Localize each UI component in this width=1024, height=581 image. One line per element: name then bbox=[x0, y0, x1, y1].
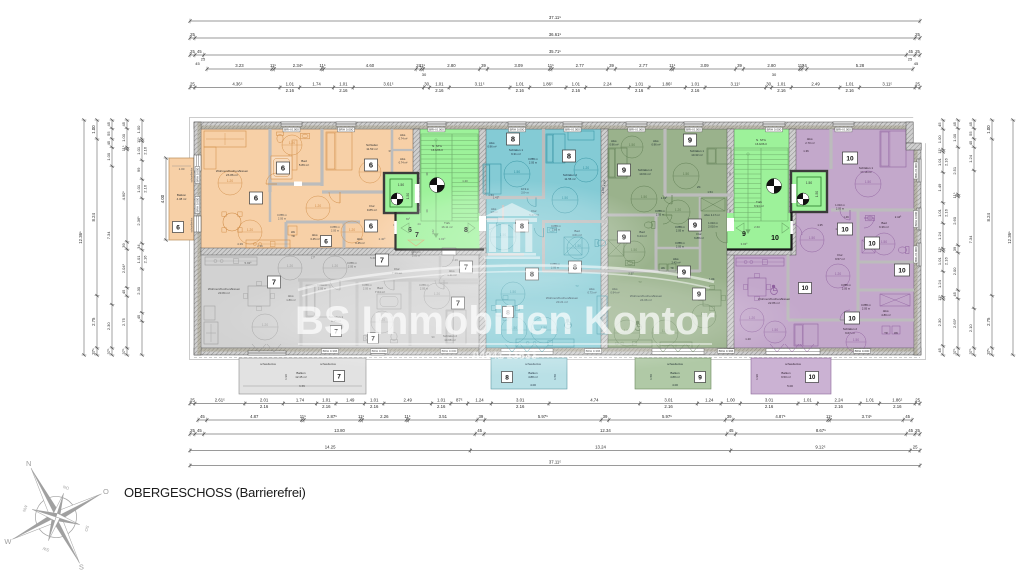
svg-text:6: 6 bbox=[281, 164, 285, 173]
svg-text:2.60: 2.60 bbox=[754, 225, 760, 229]
svg-text:5.89 m²: 5.89 m² bbox=[299, 163, 309, 167]
svg-text:2.87⁵: 2.87⁵ bbox=[327, 414, 337, 419]
svg-text:10: 10 bbox=[848, 315, 856, 322]
svg-text:1.50: 1.50 bbox=[865, 180, 871, 184]
svg-text:9.67 m²: 9.67 m² bbox=[845, 331, 855, 335]
svg-text:2.49: 2.49 bbox=[811, 81, 820, 86]
svg-text:3.01: 3.01 bbox=[664, 397, 673, 402]
svg-text:BRH 0.000: BRH 0.000 bbox=[855, 349, 870, 353]
svg-text:39: 39 bbox=[728, 172, 732, 176]
svg-text:11⁵: 11⁵ bbox=[136, 137, 141, 143]
svg-text:2.16: 2.16 bbox=[664, 404, 673, 409]
svg-text:6.88 m²: 6.88 m² bbox=[694, 236, 704, 240]
svg-text:O: O bbox=[103, 487, 109, 496]
svg-text:W: W bbox=[4, 537, 12, 546]
svg-text:11⁵: 11⁵ bbox=[669, 63, 675, 68]
svg-text:1.50: 1.50 bbox=[398, 183, 404, 187]
svg-text:2.16: 2.16 bbox=[286, 88, 295, 93]
svg-text:1.50: 1.50 bbox=[641, 195, 647, 199]
svg-text:4.38 m²: 4.38 m² bbox=[177, 197, 187, 201]
svg-text:2.16: 2.16 bbox=[691, 88, 700, 93]
svg-text:11.53 m²: 11.53 m² bbox=[366, 147, 378, 151]
svg-text:5.97⁵: 5.97⁵ bbox=[662, 414, 672, 419]
svg-text:6.36 m²: 6.36 m² bbox=[879, 225, 889, 229]
svg-text:12.36⁵: 12.36⁵ bbox=[78, 231, 83, 244]
svg-text:1.01: 1.01 bbox=[136, 146, 141, 155]
svg-text:2.05 m: 2.05 m bbox=[862, 306, 871, 310]
svg-text:5.97⁵: 5.97⁵ bbox=[538, 414, 548, 419]
svg-text:1.010 m: 1.010 m bbox=[835, 203, 845, 207]
svg-text:2.16: 2.16 bbox=[944, 257, 949, 266]
svg-text:9: 9 bbox=[698, 374, 702, 381]
svg-text:1.20: 1.20 bbox=[289, 141, 295, 145]
svg-text:BRH 0.000: BRH 0.000 bbox=[914, 163, 918, 178]
svg-text:BRH 0.000: BRH 0.000 bbox=[339, 128, 354, 132]
svg-text:39: 39 bbox=[425, 172, 429, 176]
svg-text:0.885 m: 0.885 m bbox=[330, 225, 340, 229]
svg-text:2.16: 2.16 bbox=[143, 255, 148, 264]
svg-text:16.9/26.0: 16.9/26.0 bbox=[755, 142, 767, 146]
svg-text:36.61⁵: 36.61⁵ bbox=[549, 32, 562, 37]
svg-text:1.01: 1.01 bbox=[339, 81, 348, 86]
svg-text:2.26: 2.26 bbox=[380, 414, 389, 419]
svg-text:45: 45 bbox=[968, 140, 973, 145]
svg-text:1.01: 1.01 bbox=[286, 81, 295, 86]
svg-text:1.20: 1.20 bbox=[227, 179, 233, 183]
svg-text:45: 45 bbox=[136, 314, 141, 319]
svg-text:1.00: 1.00 bbox=[121, 133, 126, 142]
svg-text:8.24: 8.24 bbox=[91, 213, 96, 222]
svg-text:2.05 m: 2.05 m bbox=[676, 228, 685, 232]
svg-text:BS Immobilien Kontor: BS Immobilien Kontor bbox=[295, 299, 715, 343]
svg-text:4.90⁵: 4.90⁵ bbox=[121, 191, 126, 201]
svg-text:1.00: 1.00 bbox=[136, 125, 141, 134]
svg-text:04941 13533: 04941 13533 bbox=[473, 350, 537, 362]
svg-text:1.00: 1.00 bbox=[179, 167, 185, 171]
svg-text:1.01: 1.01 bbox=[572, 81, 581, 86]
svg-text:2.36⁵: 2.36⁵ bbox=[136, 216, 141, 226]
svg-text:3.51: 3.51 bbox=[439, 414, 448, 419]
svg-text:1.01: 1.01 bbox=[803, 397, 812, 402]
svg-text:1.50: 1.50 bbox=[853, 338, 859, 342]
svg-text:2.16: 2.16 bbox=[635, 88, 644, 93]
svg-text:2.75: 2.75 bbox=[121, 317, 126, 326]
svg-text:1.01: 1.01 bbox=[370, 397, 379, 402]
svg-text:4.87: 4.87 bbox=[250, 414, 259, 419]
svg-text:11⁵: 11⁵ bbox=[937, 246, 942, 252]
svg-text:1.36: 1.36 bbox=[803, 149, 809, 153]
svg-text:1.49: 1.49 bbox=[346, 397, 355, 402]
svg-text:BRH 0.000: BRH 0.000 bbox=[565, 128, 580, 132]
svg-text:45: 45 bbox=[908, 428, 913, 433]
svg-text:schwellenlos: schwellenlos bbox=[785, 362, 801, 366]
svg-text:10: 10 bbox=[802, 286, 809, 292]
svg-text:Abst.: Abst. bbox=[489, 141, 495, 145]
svg-text:1.20: 1.20 bbox=[675, 208, 681, 212]
svg-text:2.16: 2.16 bbox=[765, 404, 774, 409]
svg-text:4.39: 4.39 bbox=[237, 242, 243, 246]
svg-text:1.86⁵: 1.86⁵ bbox=[662, 81, 672, 86]
svg-text:2.70 m²: 2.70 m² bbox=[805, 141, 815, 145]
svg-text:2.16: 2.16 bbox=[143, 146, 148, 155]
svg-text:45: 45 bbox=[729, 428, 734, 433]
svg-text:2.16: 2.16 bbox=[322, 404, 331, 409]
svg-text:11⁵: 11⁵ bbox=[358, 414, 364, 419]
svg-text:45: 45 bbox=[197, 428, 202, 433]
svg-text:11⁵: 11⁵ bbox=[270, 63, 276, 68]
svg-text:10: 10 bbox=[771, 235, 779, 242]
svg-text:2.61⁵: 2.61⁵ bbox=[215, 397, 225, 402]
svg-text:1.01: 1.01 bbox=[691, 81, 700, 86]
svg-text:2.16: 2.16 bbox=[944, 157, 949, 166]
svg-text:BRH 0.000: BRH 0.000 bbox=[836, 128, 851, 132]
svg-text:37⁵: 37⁵ bbox=[91, 348, 96, 355]
svg-text:25: 25 bbox=[201, 57, 206, 62]
svg-text:1.01: 1.01 bbox=[635, 81, 644, 86]
svg-text:1.00: 1.00 bbox=[986, 125, 991, 134]
svg-text:1.24: 1.24 bbox=[705, 397, 714, 402]
svg-text:8.67⁵: 8.67⁵ bbox=[816, 428, 826, 433]
svg-text:2.77: 2.77 bbox=[639, 63, 648, 68]
svg-text:1.01: 1.01 bbox=[437, 397, 446, 402]
svg-text:2.16: 2.16 bbox=[835, 404, 844, 409]
svg-text:39: 39 bbox=[481, 63, 486, 68]
svg-text:55: 55 bbox=[106, 131, 111, 136]
svg-text:2.80: 2.80 bbox=[767, 63, 776, 68]
svg-text:87⁵: 87⁵ bbox=[456, 397, 463, 402]
svg-text:2.63⁵: 2.63⁵ bbox=[952, 318, 957, 328]
svg-text:45: 45 bbox=[968, 121, 973, 126]
svg-text:11⁵: 11⁵ bbox=[404, 414, 410, 419]
svg-text:3.61⁵: 3.61⁵ bbox=[383, 81, 393, 86]
svg-text:25: 25 bbox=[915, 49, 920, 54]
svg-text:4.89 m²: 4.89 m² bbox=[881, 313, 891, 317]
svg-text:11⁵: 11⁵ bbox=[300, 414, 306, 419]
svg-text:2.16: 2.16 bbox=[143, 184, 148, 193]
svg-text:6: 6 bbox=[324, 238, 328, 245]
svg-text:0.885 m: 0.885 m bbox=[528, 157, 538, 161]
svg-text:39: 39 bbox=[952, 246, 957, 251]
svg-text:2.60: 2.60 bbox=[952, 216, 957, 225]
svg-text:37⁵: 37⁵ bbox=[106, 348, 111, 354]
svg-text:8: 8 bbox=[567, 152, 571, 161]
svg-text:BRH 0.000: BRH 0.000 bbox=[914, 247, 918, 262]
svg-text:25: 25 bbox=[915, 397, 920, 402]
svg-text:1.01: 1.01 bbox=[435, 81, 444, 86]
svg-text:0.74 m²: 0.74 m² bbox=[399, 160, 408, 164]
svg-text:9: 9 bbox=[688, 136, 692, 145]
svg-text:Abst. 4.17 m²: Abst. 4.17 m² bbox=[704, 213, 720, 217]
svg-text:45: 45 bbox=[121, 289, 126, 294]
svg-text:1.24: 1.24 bbox=[475, 397, 484, 402]
svg-text:12.34: 12.34 bbox=[600, 428, 611, 433]
svg-text:BRH 0.000: BRH 0.000 bbox=[629, 128, 644, 132]
svg-text:1.01: 1.01 bbox=[937, 257, 942, 266]
svg-text:4.00: 4.00 bbox=[530, 383, 536, 387]
svg-text:1.86⁵: 1.86⁵ bbox=[543, 81, 553, 86]
svg-text:TR: TR bbox=[670, 267, 673, 270]
svg-text:10.64 m²: 10.64 m² bbox=[639, 172, 650, 176]
svg-text:2.16: 2.16 bbox=[435, 88, 444, 93]
svg-text:1.20: 1.20 bbox=[349, 228, 355, 232]
svg-text:2.77: 2.77 bbox=[576, 63, 585, 68]
svg-text:1.01: 1.01 bbox=[937, 157, 942, 166]
svg-text:1.20: 1.20 bbox=[583, 166, 589, 170]
svg-text:45: 45 bbox=[937, 122, 942, 127]
svg-text:9.50 m²: 9.50 m² bbox=[781, 375, 791, 379]
svg-text:0.885 m: 0.885 m bbox=[861, 303, 871, 307]
svg-text:0.74 m²: 0.74 m² bbox=[399, 136, 408, 140]
svg-text:1.50: 1.50 bbox=[806, 181, 812, 185]
svg-text:6.94 m²: 6.94 m² bbox=[754, 204, 764, 208]
svg-text:11⁵: 11⁵ bbox=[937, 147, 942, 153]
svg-text:2.05 m: 2.05 m bbox=[529, 160, 538, 164]
svg-text:45: 45 bbox=[106, 121, 111, 126]
svg-text:30: 30 bbox=[422, 72, 427, 77]
svg-text:39: 39 bbox=[121, 243, 126, 248]
svg-text:schwellenlos: schwellenlos bbox=[190, 217, 194, 232]
svg-text:1.01: 1.01 bbox=[136, 255, 141, 264]
svg-text:45: 45 bbox=[908, 49, 913, 54]
svg-text:12.36⁵: 12.36⁵ bbox=[1007, 231, 1012, 244]
svg-text:Abst.: Abst. bbox=[400, 133, 406, 137]
svg-text:1.49: 1.49 bbox=[937, 183, 942, 192]
svg-text:1.00: 1.00 bbox=[91, 125, 96, 134]
svg-text:5.28: 5.28 bbox=[856, 63, 865, 68]
svg-text:13.80: 13.80 bbox=[334, 428, 345, 433]
svg-text:45: 45 bbox=[106, 140, 111, 145]
svg-text:45: 45 bbox=[937, 347, 942, 352]
svg-text:7: 7 bbox=[337, 373, 341, 380]
svg-text:1.01: 1.01 bbox=[866, 397, 875, 402]
svg-text:30: 30 bbox=[772, 72, 777, 77]
svg-text:14.18 m²: 14.18 m² bbox=[860, 170, 871, 174]
svg-text:2.51: 2.51 bbox=[952, 166, 957, 175]
svg-text:39: 39 bbox=[737, 63, 742, 68]
svg-text:25: 25 bbox=[908, 57, 913, 62]
svg-text:WA: WA bbox=[894, 331, 898, 335]
svg-text:1.90: 1.90 bbox=[284, 374, 288, 380]
svg-text:2.00: 2.00 bbox=[952, 267, 957, 276]
svg-text:BRH 0.000: BRH 0.000 bbox=[767, 128, 782, 132]
svg-text:8.24: 8.24 bbox=[986, 213, 991, 222]
svg-text:4.60: 4.60 bbox=[366, 63, 375, 68]
svg-text:2.24: 2.24 bbox=[603, 81, 612, 86]
svg-text:1.00: 1.00 bbox=[937, 135, 942, 144]
svg-text:Abst.: Abst. bbox=[673, 257, 679, 261]
svg-text:0.885 m: 0.885 m bbox=[277, 213, 287, 217]
svg-text:0.885 m: 0.885 m bbox=[841, 283, 851, 287]
svg-text:6: 6 bbox=[254, 194, 258, 203]
svg-text:0.885 m: 0.885 m bbox=[655, 209, 665, 213]
svg-text:11⁵: 11⁵ bbox=[419, 63, 425, 68]
svg-text:45: 45 bbox=[200, 414, 205, 419]
svg-text:10.33 m²: 10.33 m² bbox=[691, 153, 702, 157]
svg-text:25: 25 bbox=[190, 49, 195, 54]
svg-text:45: 45 bbox=[952, 291, 957, 296]
svg-text:4.00: 4.00 bbox=[160, 194, 165, 203]
svg-text:1.50: 1.50 bbox=[649, 374, 653, 380]
svg-text:4.00: 4.00 bbox=[672, 383, 678, 387]
svg-text:11⁵: 11⁵ bbox=[826, 414, 832, 419]
svg-text:10: 10 bbox=[868, 240, 876, 247]
svg-text:schwellenlos: schwellenlos bbox=[190, 167, 194, 182]
svg-text:BRH 0.000: BRH 0.000 bbox=[510, 128, 525, 132]
svg-text:9.57 m²: 9.57 m² bbox=[835, 257, 845, 261]
svg-text:3.09: 3.09 bbox=[700, 63, 709, 68]
svg-text:1.20: 1.20 bbox=[462, 179, 468, 183]
svg-text:1.50: 1.50 bbox=[815, 191, 819, 197]
svg-text:TR: TR bbox=[884, 331, 888, 335]
svg-text:1.24: 1.24 bbox=[937, 279, 942, 288]
svg-text:4.74: 4.74 bbox=[590, 397, 599, 402]
svg-text:2.01: 2.01 bbox=[260, 397, 269, 402]
svg-text:39: 39 bbox=[478, 414, 483, 419]
svg-text:39: 39 bbox=[728, 209, 732, 213]
svg-text:2.05 m: 2.05 m bbox=[278, 216, 287, 220]
svg-text:OBERGESCHOSS (Barrierefrei): OBERGESCHOSS (Barrierefrei) bbox=[124, 485, 306, 500]
svg-text:35.71⁵: 35.71⁵ bbox=[549, 49, 561, 54]
svg-text:1.50: 1.50 bbox=[809, 236, 815, 240]
svg-text:45: 45 bbox=[197, 49, 202, 54]
svg-text:2.05 m: 2.05 m bbox=[836, 206, 845, 210]
svg-text:10: 10 bbox=[809, 375, 816, 381]
svg-text:1.20: 1.20 bbox=[315, 204, 321, 208]
svg-text:2.49: 2.49 bbox=[404, 397, 413, 402]
svg-text:2.75: 2.75 bbox=[91, 317, 96, 326]
svg-text:45: 45 bbox=[121, 121, 126, 126]
svg-text:9: 9 bbox=[622, 166, 626, 175]
svg-text:BRH 0.000: BRH 0.000 bbox=[429, 128, 444, 132]
svg-text:12.45 m²: 12.45 m² bbox=[295, 375, 306, 379]
svg-text:0.96 m²: 0.96 m² bbox=[609, 142, 618, 146]
svg-text:3.01: 3.01 bbox=[765, 397, 774, 402]
svg-text:2.30: 2.30 bbox=[937, 318, 942, 327]
svg-text:39: 39 bbox=[727, 414, 732, 419]
svg-text:0.885 m: 0.885 m bbox=[675, 241, 685, 245]
svg-text:1.00: 1.00 bbox=[952, 133, 957, 142]
svg-text:2.30: 2.30 bbox=[136, 286, 141, 295]
svg-text:45: 45 bbox=[914, 61, 919, 66]
svg-text:2.44⁵: 2.44⁵ bbox=[895, 215, 902, 219]
svg-text:1.01: 1.01 bbox=[322, 397, 331, 402]
svg-text:45: 45 bbox=[952, 121, 957, 126]
svg-text:BRH 0.000: BRH 0.000 bbox=[196, 197, 200, 212]
svg-text:Abst.: Abst. bbox=[653, 139, 659, 143]
svg-text:4.60²: 4.60² bbox=[603, 180, 607, 186]
svg-text:BRH 0.000: BRH 0.000 bbox=[196, 167, 200, 182]
svg-text:1.54: 1.54 bbox=[707, 190, 713, 194]
svg-text:3.11⁵: 3.11⁵ bbox=[882, 81, 892, 86]
svg-text:24: 24 bbox=[802, 63, 807, 68]
svg-text:11.56 m²: 11.56 m² bbox=[564, 177, 575, 181]
svg-text:9.31 m²: 9.31 m² bbox=[511, 152, 521, 156]
svg-text:23⁵: 23⁵ bbox=[697, 185, 701, 189]
svg-text:BRH 0.000: BRH 0.000 bbox=[914, 211, 918, 226]
svg-text:55: 55 bbox=[968, 131, 973, 136]
svg-text:2.80: 2.80 bbox=[447, 63, 456, 68]
svg-text:1.90: 1.90 bbox=[755, 374, 759, 380]
svg-text:2.16: 2.16 bbox=[516, 88, 525, 93]
svg-text:BRH 0.000: BRH 0.000 bbox=[284, 128, 299, 132]
svg-text:1.24: 1.24 bbox=[937, 231, 942, 240]
svg-text:2.04⁵: 2.04⁵ bbox=[121, 263, 126, 273]
svg-text:Abst.: Abst. bbox=[611, 139, 617, 143]
svg-text:2.010 m: 2.010 m bbox=[708, 224, 718, 228]
svg-text:9.85 m²: 9.85 m² bbox=[367, 208, 377, 212]
svg-text:2.16: 2.16 bbox=[777, 88, 786, 93]
svg-text:30: 30 bbox=[766, 81, 771, 86]
svg-text:37⁵: 37⁵ bbox=[952, 348, 957, 354]
svg-text:37.11⁵: 37.11⁵ bbox=[549, 459, 561, 464]
svg-text:3.45 m²: 3.45 m² bbox=[310, 237, 320, 241]
svg-text:1.50: 1.50 bbox=[629, 143, 635, 147]
svg-text:11⁵: 11⁵ bbox=[121, 145, 126, 151]
svg-text:16.9/26.0: 16.9/26.0 bbox=[431, 148, 443, 152]
svg-text:2.16: 2.16 bbox=[257, 244, 263, 248]
svg-text:99: 99 bbox=[136, 167, 141, 172]
svg-text:1.01: 1.01 bbox=[937, 208, 942, 217]
svg-text:BRH 0.000: BRH 0.000 bbox=[686, 128, 701, 132]
svg-text:1.00: 1.00 bbox=[727, 397, 736, 402]
svg-text:TR: TR bbox=[291, 234, 295, 238]
svg-text:2.16: 2.16 bbox=[845, 88, 854, 93]
svg-text:1.01: 1.01 bbox=[516, 81, 525, 86]
svg-text:4.36⁵: 4.36⁵ bbox=[232, 81, 242, 86]
svg-text:Abst.: Abst. bbox=[400, 157, 406, 161]
svg-text:25: 25 bbox=[915, 32, 920, 37]
svg-text:37⁵: 37⁵ bbox=[121, 348, 126, 354]
svg-text:1.74: 1.74 bbox=[296, 397, 305, 402]
svg-text:3.09: 3.09 bbox=[514, 63, 523, 68]
svg-text:1.86⁵: 1.86⁵ bbox=[892, 397, 902, 402]
svg-text:2.16: 2.16 bbox=[370, 404, 379, 409]
svg-text:2.05 m: 2.05 m bbox=[842, 286, 851, 290]
svg-text:37.11⁵: 37.11⁵ bbox=[549, 15, 561, 20]
svg-text:25: 25 bbox=[190, 81, 195, 86]
svg-text:37⁵: 37⁵ bbox=[986, 348, 991, 355]
svg-text:25: 25 bbox=[915, 428, 920, 433]
svg-text:8: 8 bbox=[511, 135, 515, 144]
svg-text:1.00: 1.00 bbox=[106, 152, 111, 161]
svg-text:2.16: 2.16 bbox=[572, 88, 581, 93]
svg-text:1.01: 1.01 bbox=[845, 81, 854, 86]
svg-text:4.87⁵: 4.87⁵ bbox=[775, 414, 785, 419]
svg-text:1.20: 1.20 bbox=[247, 228, 253, 232]
svg-text:11⁵: 11⁵ bbox=[937, 295, 942, 301]
svg-text:7.34: 7.34 bbox=[106, 231, 111, 240]
svg-text:2.16: 2.16 bbox=[516, 404, 525, 409]
svg-text:0.885 m: 0.885 m bbox=[675, 225, 685, 229]
svg-text:23.86 m²: 23.86 m² bbox=[226, 173, 238, 177]
svg-text:34: 34 bbox=[136, 244, 141, 249]
svg-text:2.30: 2.30 bbox=[106, 322, 111, 331]
svg-text:1.01: 1.01 bbox=[136, 184, 141, 193]
svg-text:1.24: 1.24 bbox=[968, 154, 973, 163]
svg-text:11⁵: 11⁵ bbox=[548, 63, 554, 68]
svg-text:2.24: 2.24 bbox=[835, 397, 844, 402]
svg-text:3.23: 3.23 bbox=[235, 63, 244, 68]
svg-text:1.20: 1.20 bbox=[835, 272, 841, 276]
svg-text:0.96 m²: 0.96 m² bbox=[651, 142, 660, 146]
svg-text:45: 45 bbox=[905, 414, 910, 419]
svg-text:1.50: 1.50 bbox=[514, 170, 520, 174]
svg-text:10: 10 bbox=[898, 267, 906, 274]
svg-text:14.25: 14.25 bbox=[325, 444, 336, 449]
svg-text:1.01: 1.01 bbox=[777, 81, 786, 86]
svg-text:3.01: 3.01 bbox=[516, 397, 525, 402]
svg-text:7.34: 7.34 bbox=[968, 235, 973, 244]
